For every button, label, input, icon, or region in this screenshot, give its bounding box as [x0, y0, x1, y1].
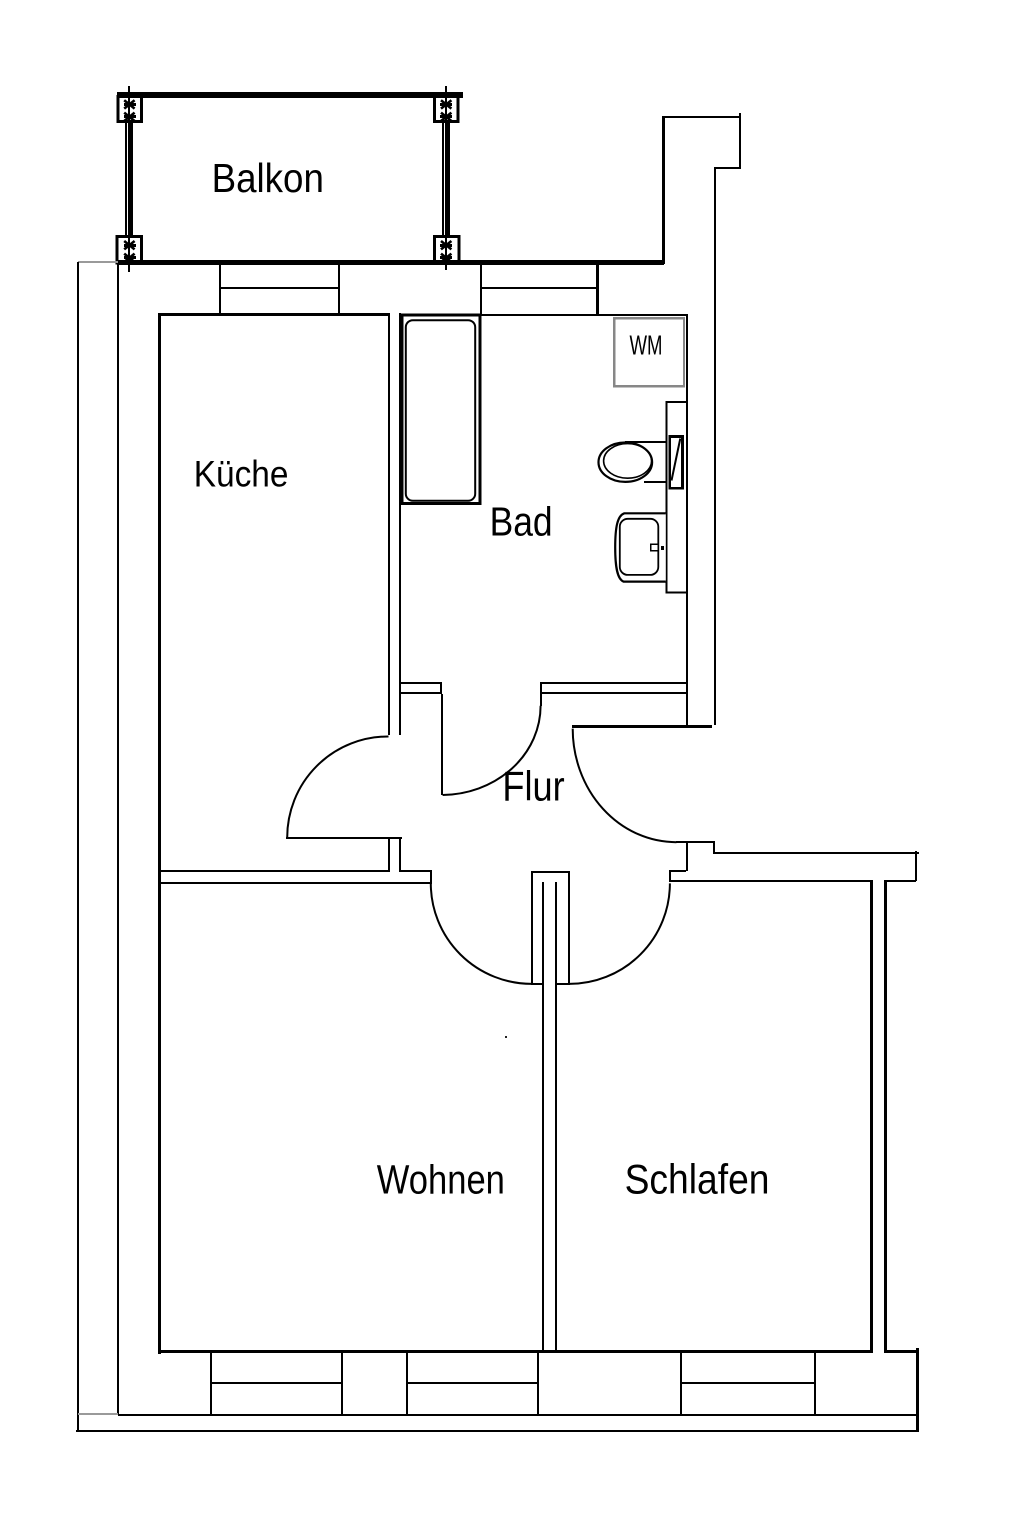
svg-text:Schlafen: Schlafen	[625, 1156, 770, 1203]
svg-text:Balkon: Balkon	[212, 155, 324, 201]
svg-text:Wohnen: Wohnen	[377, 1157, 505, 1203]
svg-text:Flur: Flur	[502, 762, 564, 809]
svg-text:WM: WM	[630, 330, 663, 361]
svg-text:Küche: Küche	[194, 453, 289, 494]
svg-text:Bad: Bad	[490, 499, 553, 545]
